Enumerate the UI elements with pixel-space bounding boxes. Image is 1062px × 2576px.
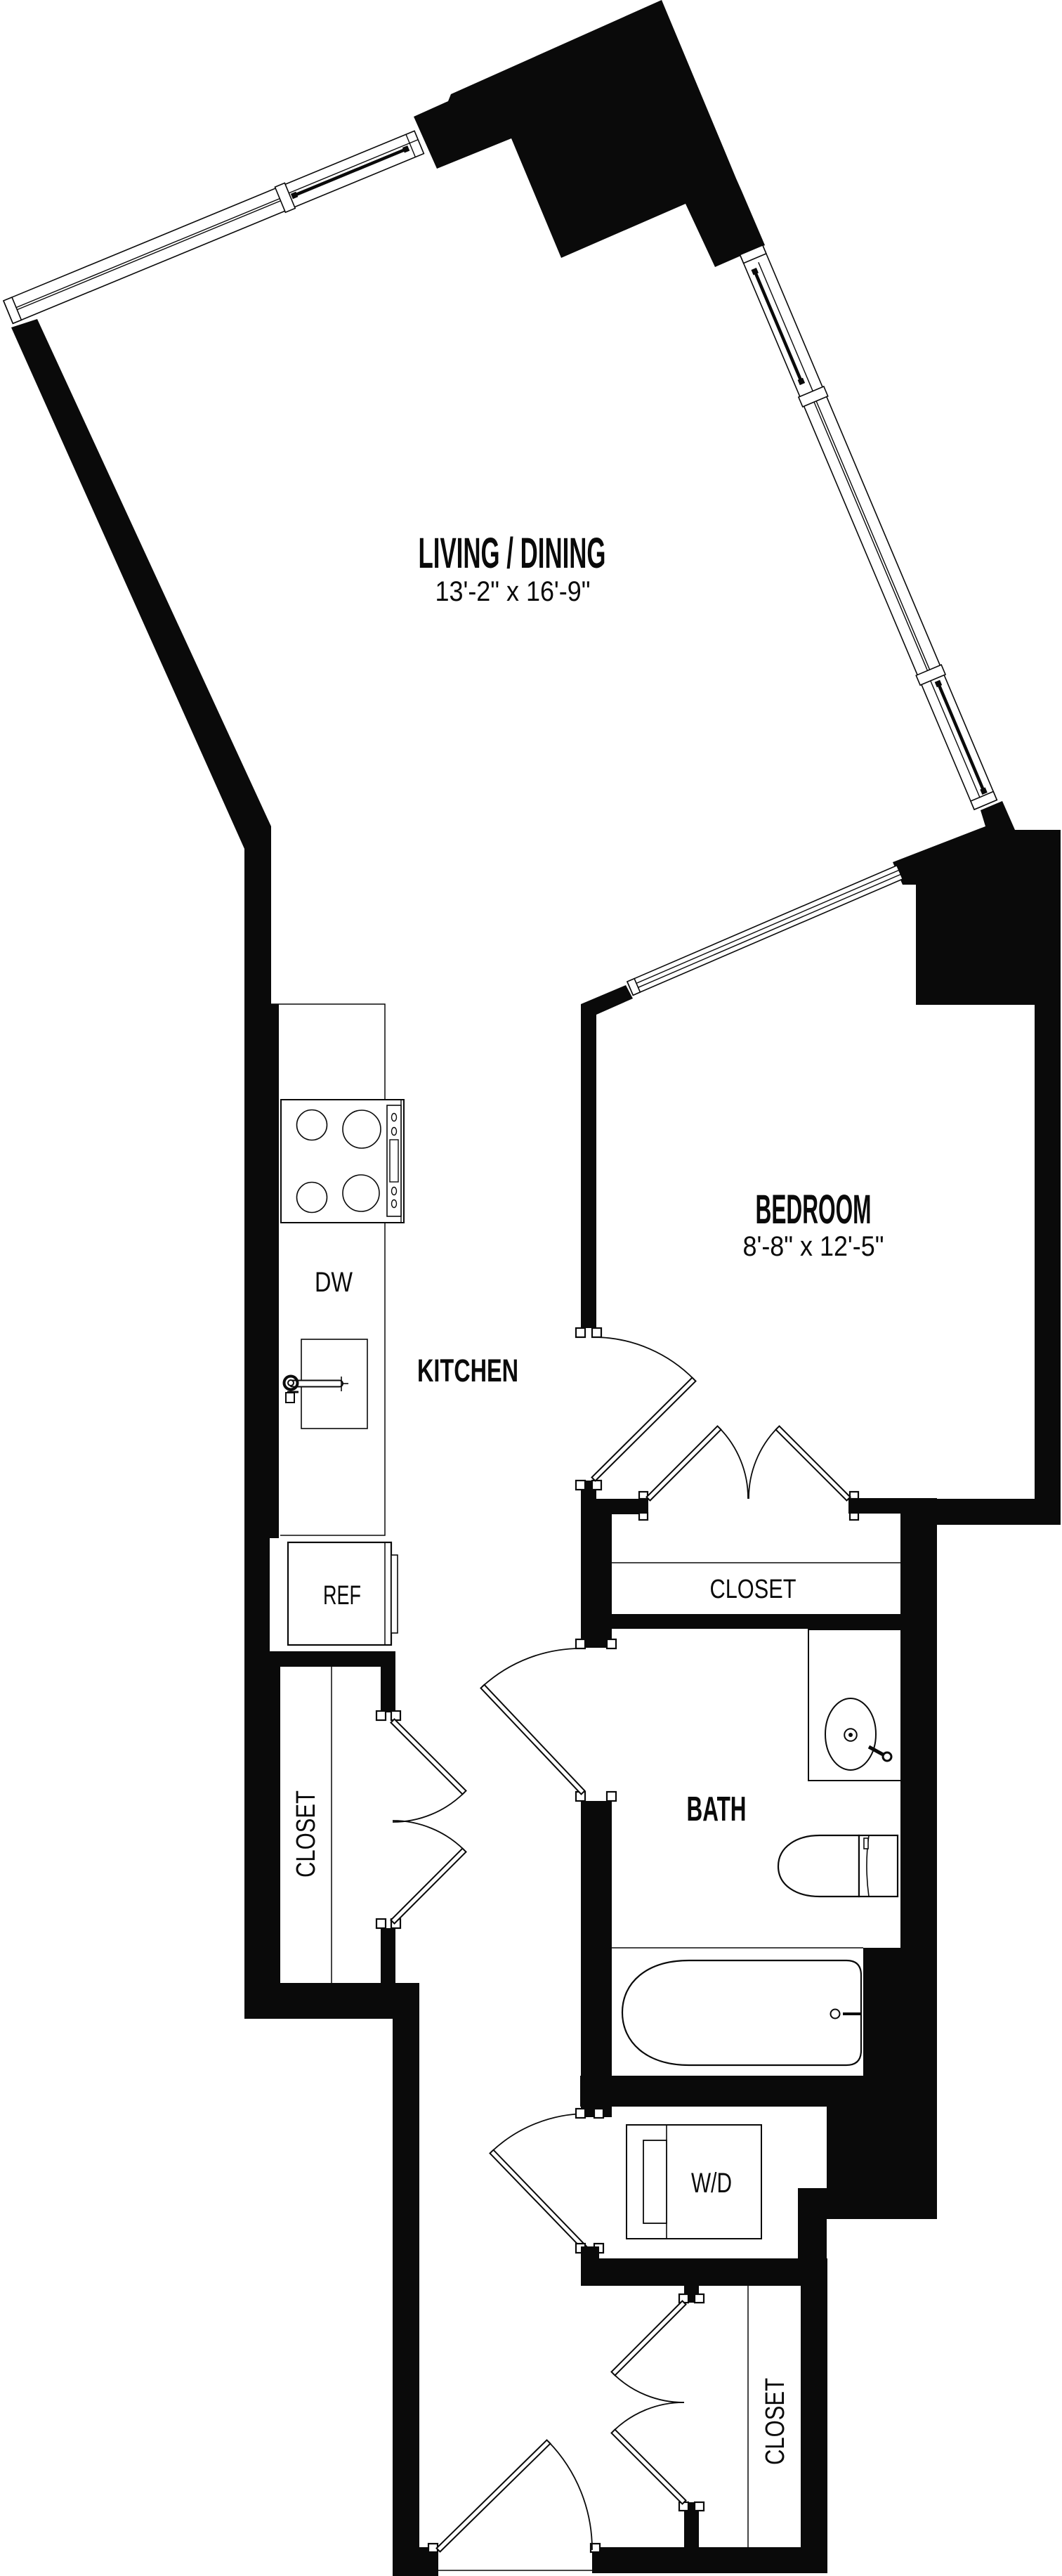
svg-text:KITCHEN: KITCHEN [417,1353,518,1388]
svg-text:BATH: BATH [687,1790,747,1828]
svg-text:DW: DW [315,1267,353,1298]
svg-text:LIVING / DINING: LIVING / DINING [419,529,606,577]
svg-text:W/D: W/D [691,2168,732,2199]
svg-text:BEDROOM: BEDROOM [756,1187,872,1232]
svg-text:CLOSET: CLOSET [710,1575,796,1604]
svg-text:REF: REF [323,1581,361,1611]
svg-text:CLOSET: CLOSET [291,1790,321,1878]
svg-text:CLOSET: CLOSET [761,2378,790,2465]
svg-text:13'-2" x 16'-9": 13'-2" x 16'-9" [435,576,591,607]
svg-text:8'-8" x 12'-5": 8'-8" x 12'-5" [743,1231,884,1262]
